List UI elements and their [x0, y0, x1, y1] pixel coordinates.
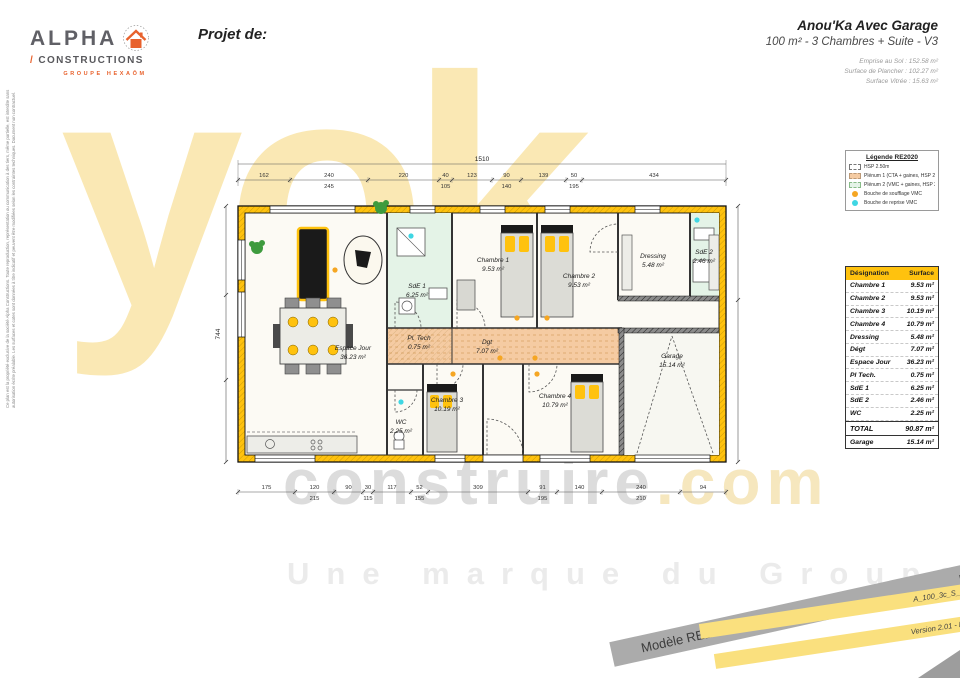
sofa — [298, 228, 328, 300]
room-label-name: SdE 2 — [695, 249, 713, 256]
dim-sub-label: 155 — [415, 496, 425, 502]
metric-vitree: Surface Vitrée : 15.63 m² — [766, 77, 938, 87]
surface-table: Désignation Surface Chambre 1 9.53 m²Cha… — [845, 266, 939, 449]
corner-decoration — [918, 650, 960, 678]
plan-title: Anou'Ka Avec Garage — [766, 18, 938, 33]
table-row: Espace Jour 36.23 m² — [846, 357, 938, 370]
room-label-name: Chambre 1 — [477, 257, 510, 264]
legend-item-label: Bouche de soufflage VMC — [864, 191, 922, 197]
room-label-area: 5.48 m² — [642, 262, 665, 269]
dim-sub-label: 195 — [569, 184, 579, 190]
dim-total-width: 1510 — [475, 156, 490, 163]
dim-sub-label: 195 — [538, 496, 548, 502]
room-label-area: 2.46 m² — [692, 258, 716, 265]
dim-sub-label: 245 — [324, 184, 334, 190]
legend-item-label: Plénum 2 (VMC + gaines, HSP 2.11 m) — [864, 182, 935, 188]
room-surface: 2.46 m² — [911, 397, 934, 404]
dim-sub-label: 210 — [636, 496, 646, 502]
legend-items: HSP 2.50m Plénum 1 (CTA + gaines, HSP 2.… — [849, 164, 935, 206]
dim-label: 94 — [700, 485, 707, 491]
dim-label: 120 — [310, 485, 320, 491]
logo-wordmark: ALPHA — [30, 27, 117, 51]
room-label-area: 6.25 m² — [406, 292, 429, 299]
project-label: Projet de: — [198, 26, 267, 43]
table-row: Chambre 4 10.79 m² — [846, 318, 938, 331]
legend-item: Bouche de soufflage VMC — [849, 191, 935, 197]
legend-item: HSP 2.50m — [849, 164, 935, 170]
legend-item: Plénum 1 (CTA + gaines, HSP 2.04 m) — [849, 173, 935, 179]
dim-sub-label: 140 — [502, 184, 512, 190]
logo-slash: / — [30, 55, 34, 66]
bed-chambre2 — [541, 225, 573, 317]
table-row: Chambre 2 9.53 m² — [846, 293, 938, 306]
dim-label: 140 — [575, 485, 585, 491]
dim-label: 117 — [387, 485, 396, 491]
dim-label: 91 — [539, 485, 545, 491]
room-designation: Chambre 1 — [850, 282, 911, 289]
banner-version-label: Version 2.01 - Mars 2023 — [910, 615, 960, 636]
legend-item-label: HSP 2.50m — [864, 164, 889, 170]
dim-label: 434 — [649, 173, 659, 179]
table-row-garage: Garage 15.14 m² — [846, 436, 938, 448]
dim-sub-label: 105 — [441, 184, 451, 190]
dim-label: 123 — [467, 173, 477, 179]
legend-swatch-dashed — [849, 164, 861, 170]
total-label: TOTAL — [850, 424, 905, 433]
dim-sub-label: 115 — [363, 496, 372, 502]
room-surface: 7.07 m² — [911, 346, 934, 353]
legend-swatch-green — [849, 182, 861, 188]
room-label-name: Dgt — [482, 339, 493, 346]
title-block: Anou'Ka Avec Garage 100 m² - 3 Chambres … — [766, 18, 938, 86]
room-label-name: Pl. Tech — [407, 335, 431, 342]
surface-rows: Chambre 1 9.53 m²Chambre 2 9.53 m²Chambr… — [846, 280, 938, 421]
room-designation: Espace Jour — [850, 359, 907, 366]
bed-chambre3 — [427, 384, 457, 452]
room-surface: 6.25 m² — [911, 385, 934, 392]
room-designation: Dressing — [850, 334, 911, 341]
room-surface: 0.75 m² — [911, 372, 934, 379]
plan-metrics: Emprise au Sol : 152.58 m² Surface de Pl… — [766, 57, 938, 86]
room-label-name: Garage — [661, 353, 683, 360]
dim-label: 50 — [571, 173, 577, 179]
surface-table-header: Désignation Surface — [846, 267, 938, 280]
legal-note: Ce plan est la propriété exclusive de la… — [5, 78, 16, 408]
dim-label: 90 — [503, 173, 509, 179]
room-label-name: WC — [396, 419, 407, 426]
room-designation: SdE 1 — [850, 385, 911, 392]
total-value: 90.87 m² — [905, 424, 934, 433]
legend-swatch-orange — [849, 173, 861, 179]
legend-swatch-dot-orange — [849, 191, 861, 197]
room-label-area: 9.53 m² — [482, 266, 505, 273]
floor-plan: 1510 744 1622402452204010512390140139501… — [185, 140, 805, 540]
table-row: SdE 2 2.46 m² — [846, 395, 938, 408]
room-designation: WC — [850, 410, 911, 417]
legend-title: Légende RE2020 — [849, 154, 935, 161]
room-label-name: Espace Jour — [335, 345, 372, 352]
dim-total-height: 744 — [215, 328, 222, 339]
garage-label: Garage — [850, 439, 907, 446]
bed-chambre4 — [571, 374, 603, 452]
room-designation: Chambre 4 — [850, 321, 907, 328]
room-label-area: 2.25 m² — [389, 428, 413, 435]
logo-group-tagline: GROUPE HEXAÔM — [30, 71, 180, 77]
room-designation: Chambre 2 — [850, 295, 911, 302]
table-row: Chambre 1 9.53 m² — [846, 280, 938, 293]
legend-swatch-dot-cyan — [849, 200, 861, 206]
room-surface: 2.25 m² — [911, 410, 934, 417]
room-label-area: 36.23 m² — [340, 354, 366, 361]
table-row: Dressing 5.48 m² — [846, 331, 938, 344]
dim-label: 52 — [416, 485, 422, 491]
dim-label: 309 — [473, 485, 483, 491]
legal-note-text: Ce plan est la propriété exclusive de la… — [5, 78, 17, 408]
dim-label: 175 — [262, 485, 272, 491]
room-label-area: 9.53 m² — [568, 282, 591, 289]
dim-label: 220 — [399, 173, 409, 179]
room-designation: Chambre 3 — [850, 308, 907, 315]
dim-label: 139 — [539, 173, 549, 179]
dim-label: 90 — [345, 485, 351, 491]
room-label-area: 15.14 m² — [659, 362, 685, 369]
room-label-area: 10.19 m² — [434, 406, 460, 413]
room-surface: 36.23 m² — [907, 359, 934, 366]
metric-emprise: Emprise au Sol : 152.58 m² — [766, 57, 938, 67]
legend-item-label: Plénum 1 (CTA + gaines, HSP 2.04 m) — [864, 173, 935, 179]
room-surface: 9.53 m² — [911, 282, 934, 289]
plan-subtitle: 100 m² - 3 Chambres + Suite - V3 — [766, 36, 938, 48]
dim-label: 162 — [259, 173, 269, 179]
table-row-total: TOTAL 90.87 m² — [846, 421, 938, 437]
dim-label: 240 — [636, 485, 646, 491]
room-label-name: Chambre 3 — [431, 397, 464, 404]
room-designation: Pl Tech. — [850, 372, 911, 379]
table-row: Pl Tech. 0.75 m² — [846, 369, 938, 382]
legend-item: Bouche de reprise VMC — [849, 200, 935, 206]
room-label-name: Chambre 4 — [539, 393, 572, 400]
dim-label: 30 — [365, 485, 371, 491]
metric-plancher: Surface de Plancher : 102.27 m² — [766, 67, 938, 77]
table-row: SdE 1 6.25 m² — [846, 382, 938, 395]
dim-sub-label: 215 — [310, 496, 320, 502]
dim-label: 40 — [442, 173, 448, 179]
table-row: Dégt 7.07 m² — [846, 344, 938, 357]
table-row: Chambre 3 10.19 m² — [846, 306, 938, 319]
garage-value: 15.14 m² — [907, 439, 934, 446]
room-surface: 5.48 m² — [911, 334, 934, 341]
room-surface: 9.53 m² — [911, 295, 934, 302]
dining-table — [273, 298, 353, 374]
plan-sheet: yok construire.com Une marque du Groupe … — [0, 0, 960, 678]
logo-subline: CONSTRUCTIONS — [38, 55, 143, 66]
table-row: WC 2.25 m² — [846, 408, 938, 421]
dim-label: 240 — [324, 173, 334, 179]
room-label-area: 7.07 m² — [476, 348, 499, 355]
room-label-name: SdE 1 — [408, 283, 426, 290]
room-designation: SdE 2 — [850, 397, 911, 404]
house-icon — [121, 24, 151, 54]
room-designation: Dégt — [850, 346, 911, 353]
room-label-area: 10.79 m² — [542, 402, 568, 409]
room-surface: 10.79 m² — [907, 321, 934, 328]
room-label-name: Chambre 2 — [563, 273, 596, 280]
legend-item-label: Bouche de reprise VMC — [864, 200, 917, 206]
legend-item: Plénum 2 (VMC + gaines, HSP 2.11 m) — [849, 182, 935, 188]
room-label-area: 0.75 m² — [408, 344, 431, 351]
room-label-name: Dressing — [640, 253, 666, 260]
col-surface: Surface — [909, 270, 934, 277]
company-logo: ALPHA / CONSTRUCTIONS GROUPE HEXAÔM — [30, 24, 180, 77]
legend-box: Légende RE2020 HSP 2.50m Plénum 1 (CTA +… — [845, 150, 939, 211]
room-surface: 10.19 m² — [907, 308, 934, 315]
col-designation: Désignation — [850, 270, 909, 277]
